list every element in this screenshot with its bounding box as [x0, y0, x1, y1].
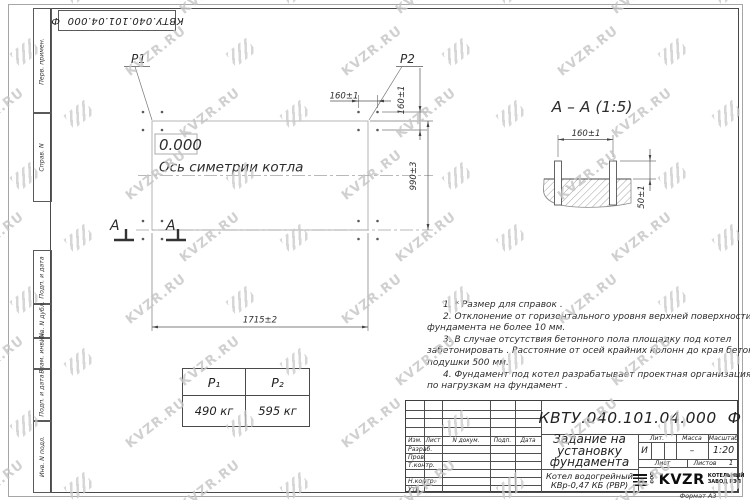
tb-header-list: Лист [424, 436, 442, 445]
tb-row-utv: Утв. [406, 485, 444, 493]
tb-sheet-label: Лист [638, 459, 687, 467]
kvzr-logo-stripes-icon [633, 474, 647, 486]
axis-label: Ось симетрии котла [159, 160, 303, 176]
format-label: Формат А3 [648, 492, 748, 500]
drawing-sheet: Перв. примен. Справ. N Подп. и дата Инв.… [0, 0, 750, 500]
load-table-value-p2: 595 кг [246, 396, 309, 426]
tb-lit-header: Лит. [638, 434, 676, 442]
section-title: A – A (1:5) [551, 98, 633, 116]
note-line: по нагрузкам на фундамент . [427, 381, 745, 393]
tb-row-prov: Пров. [406, 453, 444, 461]
title-block-designation: КВТУ.040.101.04.000 Ф [541, 401, 739, 434]
note-line: 1. * Размер для справок . [427, 300, 745, 312]
load-table-header-p1: P₁ [183, 369, 246, 396]
dim-160-side: 160±1 [397, 86, 407, 115]
note-line: подушки 500 мм. [427, 358, 745, 370]
note-line: фундамента не более 10 мм. [427, 323, 745, 335]
note-line: 2. Отклонение от горизонтального уровня … [427, 312, 745, 324]
load-table-value-p1: 490 кг [183, 396, 246, 426]
dim-160-top: 160±1 [330, 92, 359, 102]
tb-logo-cell: ООО KVZR КОТЕЛЬНЫЙ ЗАВОД РЭП [638, 467, 739, 493]
tb-row-nkontr: Н.контр. [406, 477, 444, 485]
notes-block: 1. * Размер для справок . 2. Отклонение … [427, 300, 745, 393]
tb-product-name: Котел водогрейный КВр-0,47 КБ (РВР) [541, 469, 638, 493]
tb-header-data: Дата [515, 436, 541, 445]
dim-990: 990±3 [409, 162, 419, 191]
anchor-bolt-right [610, 161, 617, 205]
p2-label: P2 [400, 52, 415, 66]
tb-mass-header: Масса [676, 434, 708, 442]
tb-mass-value: – [676, 442, 708, 459]
plan-drawing: P1 P2 160±1 160±1 [109, 52, 433, 331]
tb-header-izm: Изм. [406, 436, 424, 445]
tb-scale-value: 1:20 [708, 442, 739, 459]
title-block: КВТУ.040.101.04.000 Ф Изм. Лист N докум.… [405, 400, 738, 492]
tb-header-ndokum: N докум. [442, 436, 490, 445]
note-line: 4. Фундамент под котел разрабатывает про… [427, 370, 745, 382]
section-drawing: A – A (1:5) 160±1 50±1 [543, 98, 656, 209]
kvzr-logo-sub2: ЗАВОД РЭП [708, 480, 745, 486]
note-line: забетонировать . Расстояние от осей край… [427, 346, 745, 358]
kvzr-logo-text: KVZR [659, 472, 705, 488]
tb-row-tkontr: Т.контр. [406, 461, 444, 469]
tb-sheets-label: Листов [687, 459, 723, 467]
load-table: P₁ P₂ 490 кг 595 кг [182, 368, 310, 427]
p1-label: P1 [131, 52, 146, 66]
tb-scale-header: Масштаб [708, 434, 739, 442]
load-table-header-p2: P₂ [246, 369, 309, 396]
dim-1715: 1715±2 [243, 316, 277, 326]
tb-title-line: фундамента [550, 457, 629, 469]
tb-header-podp: Подп. [490, 436, 515, 445]
tb-document-title: Задание на установку фундамента [541, 434, 638, 469]
section-mark-a2: A [165, 218, 176, 234]
section-mark-a1: A [109, 218, 120, 234]
tb-sheets-value: 1 [723, 459, 739, 467]
kvzr-logo-subtitle: КОТЕЛЬНЫЙ ЗАВОД РЭП [708, 474, 745, 485]
kvzr-logo-ooo: ООО [650, 477, 655, 483]
tb-row-empty [406, 469, 444, 477]
tb-lit-value: И [638, 442, 651, 459]
tb-row-razrab: Разраб. [406, 445, 444, 453]
tb-product-line: КВр-0,47 КБ (РВР) [551, 481, 628, 491]
elevation-label: 0.000 [159, 136, 202, 154]
note-line: 3. В случае отсутствия бетонного пола пл… [427, 335, 745, 347]
anchor-bolt-left [555, 161, 562, 205]
section-dim-50: 50±1 [637, 185, 647, 208]
section-dim-160: 160±1 [572, 129, 601, 139]
